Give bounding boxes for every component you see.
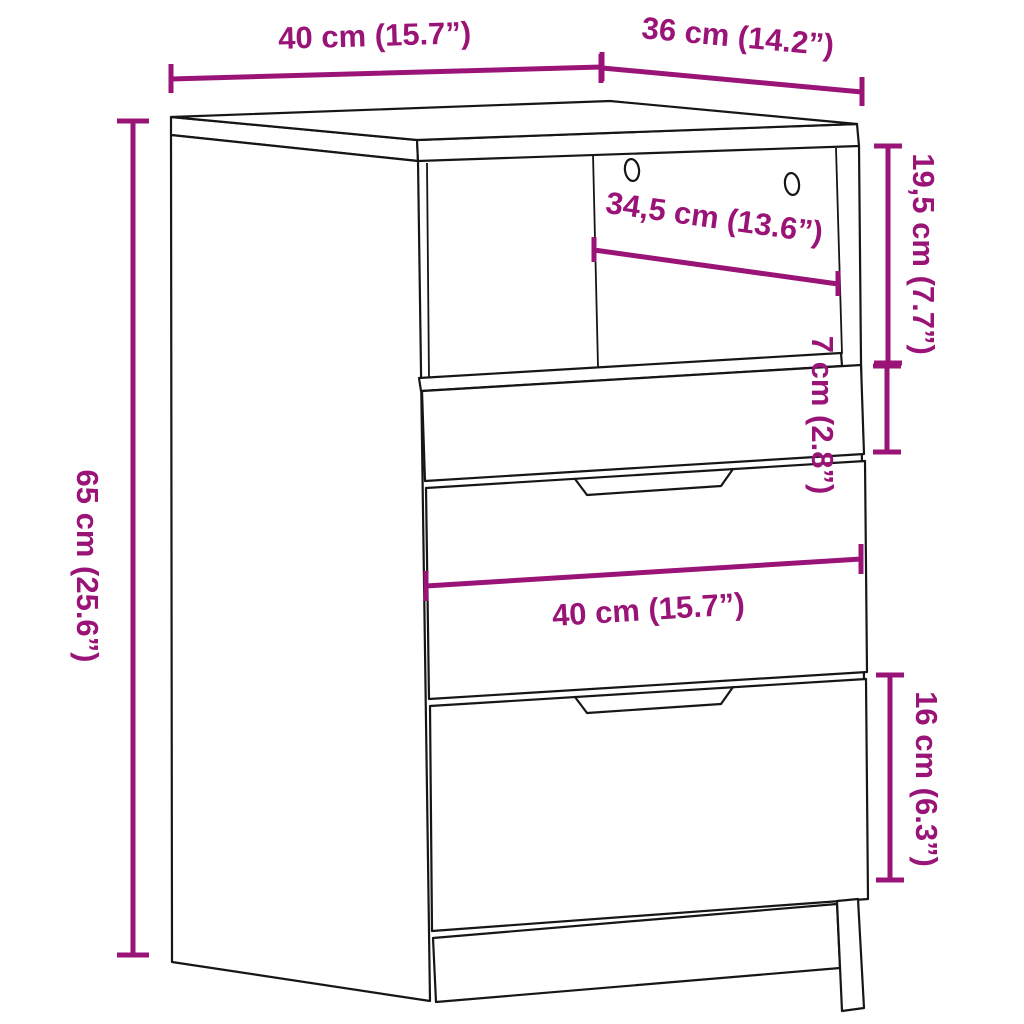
dim-compartment-height-line	[874, 146, 902, 363]
dim-compartment-height-label: 19,5 cm (7.7”)	[906, 153, 941, 355]
dim-compartment-height: 19,5 cm (7.7”)	[874, 146, 941, 363]
dim-bottom-drawer-height-line	[876, 675, 904, 880]
compartment-right-inner-edge	[836, 148, 842, 354]
dimension-diagram-svg: 40 cm (15.7”) 36 cm (14.2”) 19,5 cm (7.7…	[0, 0, 1024, 1024]
dim-small-drawer-height-label: 7 cm (2.8”)	[805, 336, 840, 495]
dim-bottom-drawer-height-label: 16 cm (6.3”)	[909, 691, 944, 867]
open-compartment	[419, 148, 842, 391]
dim-top-width-label: 40 cm (15.7”)	[278, 15, 472, 56]
left-side-panel	[171, 135, 430, 1001]
compartment-left-inner-edge	[427, 163, 429, 380]
dim-compartment-width: 34,5 cm (13.6”)	[594, 185, 838, 296]
screw-hole-right	[784, 172, 801, 196]
dim-top-depth: 36 cm (14.2”)	[602, 10, 862, 106]
drawer-3	[430, 679, 868, 931]
dim-overall-height: 65 cm (25.6”)	[70, 121, 149, 955]
dim-top-width: 40 cm (15.7”)	[171, 15, 601, 93]
right-front-leg	[837, 899, 864, 1011]
dim-overall-height-line	[117, 121, 149, 955]
dim-small-drawer-height-line	[873, 366, 901, 452]
dim-overall-height-label: 65 cm (25.6”)	[70, 470, 105, 663]
screw-hole-left	[624, 158, 641, 182]
dim-top-depth-label: 36 cm (14.2”)	[640, 10, 835, 63]
dim-top-width-line	[171, 54, 601, 93]
dim-bottom-drawer-height: 16 cm (6.3”)	[876, 675, 944, 880]
